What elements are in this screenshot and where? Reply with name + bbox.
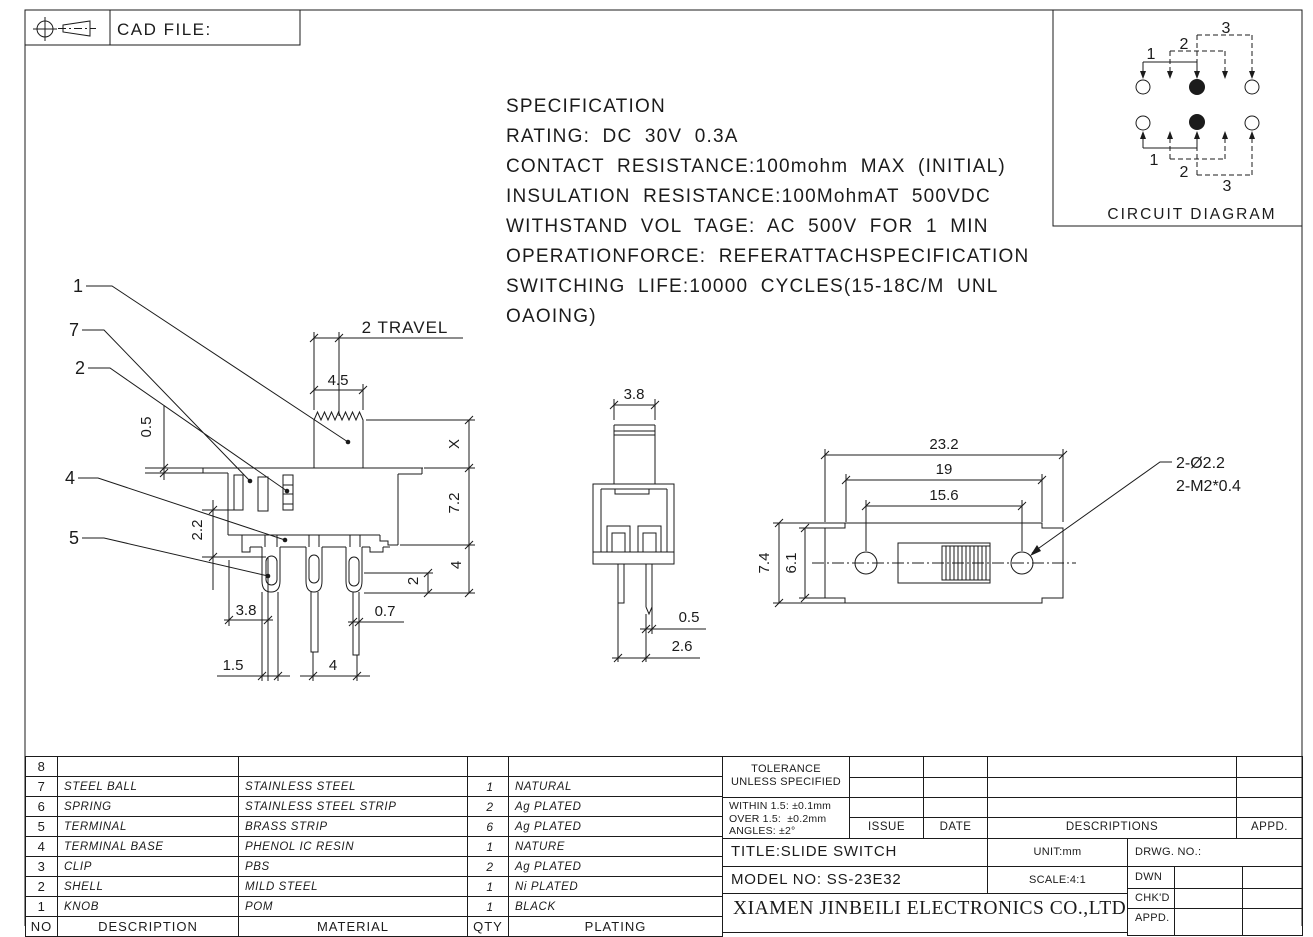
dim-mid: 19 <box>936 461 953 478</box>
leader-arrow-icon <box>1030 545 1041 556</box>
dim-terminal-length: 4 <box>448 561 465 569</box>
circuit-diagram: 1 2 3 1 2 3 CIRCUIT DIAGRAM <box>1053 10 1302 226</box>
cad-drawing-page: { "colors": {"line": "#1b1b1b", "backgro… <box>0 0 1313 926</box>
arrow-down-icon <box>1222 71 1228 79</box>
terminal-circle <box>1136 116 1150 130</box>
dim-knob-width: 4.5 <box>328 372 349 389</box>
arrow-up-icon <box>1140 131 1146 139</box>
terminal-hole <box>309 555 319 583</box>
arrow-down-icon <box>1194 71 1200 79</box>
drawing-canvas: CAD FILE: 1 2 3 1 2 3 CIRCUIT DIAGRAM <box>0 0 1313 926</box>
circuit-label-2: 2 <box>1180 36 1189 53</box>
callout-terminal: 5 <box>69 528 79 548</box>
top-dim-ticks <box>775 451 1067 607</box>
dim-pin-width: 0.7 <box>375 603 396 620</box>
terminal-circle <box>1245 116 1259 130</box>
side-outline <box>593 425 674 614</box>
arrow-down-icon <box>1249 71 1255 79</box>
terminal-circle-filled <box>1189 114 1205 130</box>
top-view: 23.2 19 15.6 7.4 6.1 2-Ø2.2 2-M2*0.4 <box>756 436 1241 607</box>
front-view: 1 7 2 4 5 2 TRAVEL 4.5 0.5 2.2 X 7.2 4 2… <box>65 276 475 681</box>
dim-height-x: X <box>446 439 463 449</box>
dim-pitch: 4 <box>329 657 337 674</box>
circuit-label-3b: 3 <box>1223 178 1232 195</box>
front-dimension-lines <box>145 332 475 681</box>
dim-inner-height: 6.1 <box>783 553 800 574</box>
dim-side-pin-width: 0.5 <box>679 609 700 626</box>
dim-tip: 2 <box>405 577 422 585</box>
circuit-label-2b: 2 <box>1180 164 1189 181</box>
dim-38: 3.8 <box>236 602 257 619</box>
callout-base: 4 <box>65 468 75 488</box>
terminal-circle-filled <box>1189 79 1205 95</box>
hole-note-2: 2-M2*0.4 <box>1176 478 1241 495</box>
dim-side-pin-pitch: 2.6 <box>672 638 693 655</box>
dim-15: 1.5 <box>223 657 244 674</box>
cad-file-box: CAD FILE: <box>25 10 300 45</box>
dim-holes: 15.6 <box>929 487 958 504</box>
projection-symbol-icon <box>33 17 96 41</box>
dim-body-height: 7.2 <box>446 493 463 514</box>
arrow-up-icon <box>1194 131 1200 139</box>
side-view: 3.8 0.5 2.6 <box>593 386 706 662</box>
slot-window <box>234 475 243 510</box>
front-dim-ticks <box>160 334 473 680</box>
circuit-label-1: 1 <box>1147 46 1156 63</box>
terminal-hole <box>349 557 359 586</box>
callout-knob: 1 <box>73 276 83 296</box>
arrow-up-icon <box>1222 131 1228 139</box>
dim-travel: 2 TRAVEL <box>362 318 449 337</box>
circuit-label-3: 3 <box>1222 20 1231 37</box>
callout-steel-ball: 7 <box>69 320 79 340</box>
dim-flange: 0.5 <box>138 417 155 438</box>
slot-window <box>258 477 268 511</box>
terminal-circle <box>1136 80 1150 94</box>
cad-file-label: CAD FILE: <box>117 20 212 39</box>
hole-note-1: 2-Ø2.2 <box>1176 455 1225 472</box>
terminal-circle <box>1245 80 1259 94</box>
arrow-down-icon <box>1167 71 1173 79</box>
arrow-up-icon <box>1249 131 1255 139</box>
circuit-label-1b: 1 <box>1150 152 1159 169</box>
dim-overall: 23.2 <box>929 436 958 453</box>
arrow-up-icon <box>1167 131 1173 139</box>
callout-spring: 2 <box>75 358 85 378</box>
dim-slot-depth: 2.2 <box>189 520 206 541</box>
circuit-diagram-title: CIRCUIT DIAGRAM <box>1107 206 1276 223</box>
dim-side-knob-width: 3.8 <box>624 386 645 403</box>
dim-height: 7.4 <box>756 553 773 574</box>
arrow-down-icon <box>1140 71 1146 79</box>
